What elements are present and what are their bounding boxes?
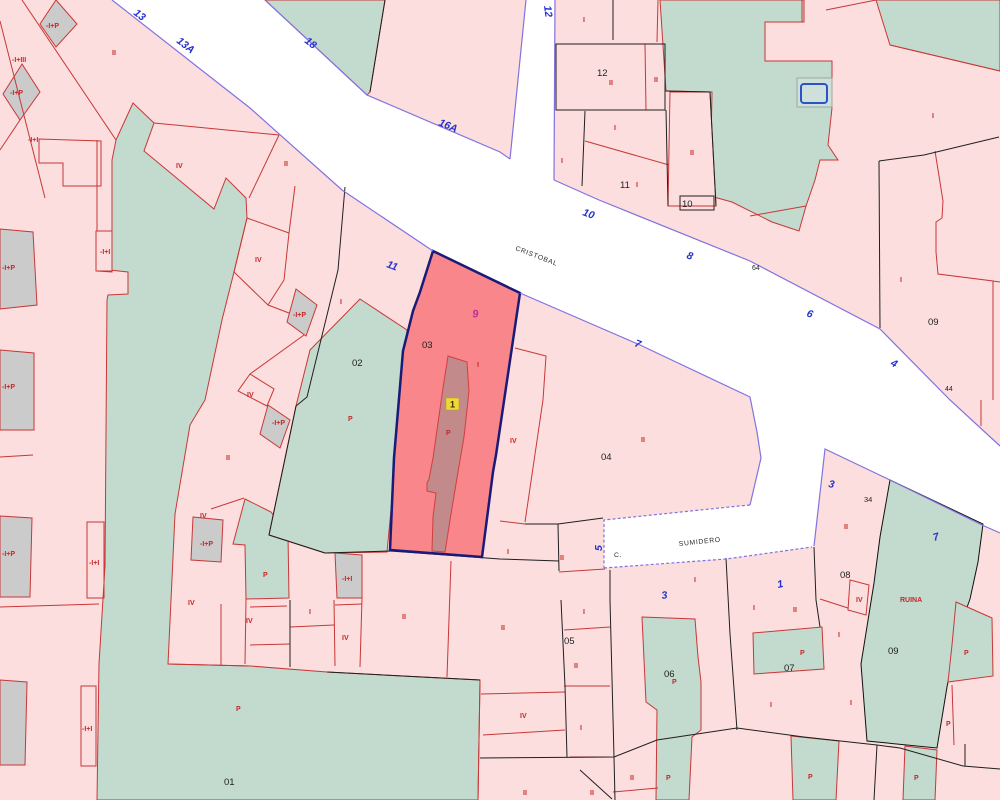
svg-text:RUINA: RUINA [900, 597, 922, 604]
svg-text:07: 07 [784, 663, 795, 674]
svg-text:IV: IV [188, 600, 195, 607]
svg-text:09: 09 [928, 317, 939, 328]
svg-text:I: I [477, 362, 479, 369]
svg-text:I: I [900, 277, 902, 284]
svg-text:12: 12 [597, 68, 608, 79]
svg-text:I: I [636, 182, 638, 189]
svg-text:I: I [694, 577, 696, 584]
svg-text:I: I [583, 17, 585, 24]
svg-text:I: I [614, 125, 616, 132]
svg-text:-I+P: -I+P [293, 312, 306, 319]
svg-text:I: I [753, 605, 755, 612]
svg-text:-I+I: -I+I [100, 249, 110, 256]
svg-text:P: P [964, 650, 969, 657]
svg-text:II: II [112, 50, 116, 57]
svg-text:-I+I: -I+I [89, 560, 99, 567]
svg-text:II: II [844, 524, 848, 531]
svg-text:IV: IV [247, 392, 254, 399]
svg-text:II: II [560, 555, 564, 562]
svg-text:P: P [800, 650, 805, 657]
svg-text:I: I [932, 113, 934, 120]
svg-text:03: 03 [422, 340, 433, 351]
svg-text:P: P [263, 572, 268, 579]
svg-text:II: II [630, 775, 634, 782]
svg-text:P: P [946, 721, 951, 728]
svg-text:5: 5 [593, 545, 605, 551]
svg-text:I: I [838, 632, 840, 639]
svg-text:I: I [340, 299, 342, 306]
svg-text:44: 44 [945, 386, 953, 393]
svg-text:10: 10 [682, 199, 693, 210]
svg-text:I: I [309, 609, 311, 616]
svg-text:IV: IV [510, 438, 517, 445]
svg-text:01: 01 [224, 777, 235, 788]
svg-text:P: P [236, 706, 241, 713]
svg-text:P: P [666, 775, 671, 782]
svg-text:IV: IV [520, 713, 527, 720]
svg-text:-I+P: -I+P [272, 420, 285, 427]
svg-text:P: P [914, 775, 919, 782]
svg-text:I: I [583, 609, 585, 616]
svg-text:P: P [808, 774, 813, 781]
svg-text:II: II [574, 663, 578, 670]
svg-text:08: 08 [840, 570, 851, 581]
svg-text:-I+P: -I+P [10, 90, 23, 97]
svg-text:II: II [226, 455, 230, 462]
svg-text:II: II [501, 625, 505, 632]
svg-text:11: 11 [620, 180, 630, 191]
svg-text:IV: IV [176, 163, 183, 170]
svg-text:I: I [580, 725, 582, 732]
svg-text:-I+P: -I+P [2, 265, 15, 272]
svg-text:04: 04 [601, 452, 612, 463]
svg-text:05: 05 [564, 636, 575, 647]
svg-text:II: II [690, 150, 694, 157]
svg-text:I: I [507, 549, 509, 556]
svg-text:-I+P: -I+P [200, 541, 213, 548]
svg-text:II: II [654, 77, 658, 84]
svg-text:-I+I: -I+I [342, 576, 352, 583]
svg-text:34: 34 [864, 495, 872, 504]
svg-text:P: P [446, 430, 451, 437]
svg-text:II: II [523, 790, 527, 797]
svg-text:II: II [284, 161, 288, 168]
svg-text:II: II [402, 614, 406, 621]
svg-text:P: P [348, 416, 353, 423]
svg-text:IV: IV [856, 597, 863, 604]
svg-text:-I+P: -I+P [2, 384, 15, 391]
svg-text:IV: IV [246, 618, 253, 625]
svg-text:I: I [770, 702, 772, 709]
svg-text:IV: IV [200, 513, 207, 520]
svg-text:-I+III: -I+III [12, 57, 26, 64]
svg-text:-I+P: -I+P [46, 23, 59, 30]
svg-text:I: I [850, 700, 852, 707]
svg-text:09: 09 [888, 646, 899, 657]
svg-text:-I+P: -I+P [2, 551, 15, 558]
svg-text:P: P [672, 679, 677, 686]
svg-text:12: 12 [541, 5, 554, 18]
svg-text:II: II [609, 80, 613, 87]
svg-text:II: II [793, 607, 797, 614]
svg-text:II: II [590, 790, 594, 797]
svg-text:II: II [641, 437, 645, 444]
svg-text:IV: IV [342, 635, 349, 642]
svg-text:IV: IV [255, 257, 262, 264]
svg-text:1: 1 [450, 400, 455, 410]
svg-text:-I+I: -I+I [82, 726, 92, 733]
svg-text:I: I [561, 158, 563, 165]
svg-text:C.: C. [614, 552, 622, 559]
svg-text:-I+I: -I+I [28, 137, 38, 144]
svg-text:64: 64 [752, 265, 760, 272]
svg-text:02: 02 [352, 358, 363, 369]
